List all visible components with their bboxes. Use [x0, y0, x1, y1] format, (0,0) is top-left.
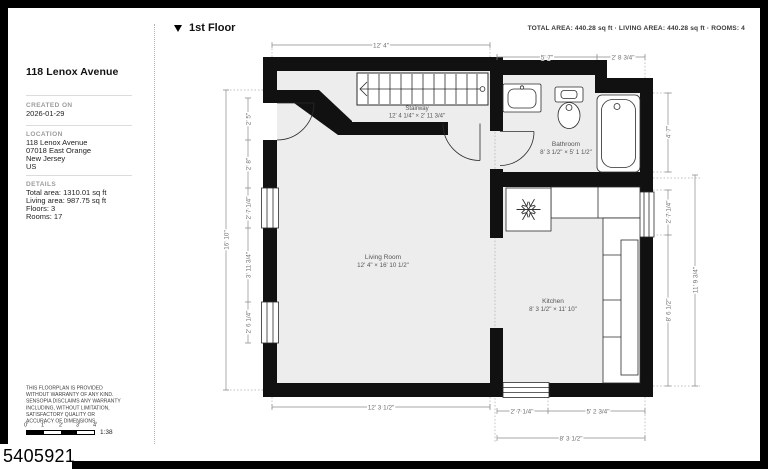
- sink: [503, 84, 541, 112]
- details-heading: DETAILS: [26, 181, 56, 188]
- svg-text:Living Room: Living Room: [365, 254, 401, 261]
- scale-segment: [61, 431, 78, 434]
- dimension-label: 11' 9 3/4": [693, 267, 700, 293]
- entry-door-opening: [263, 103, 277, 140]
- kitchen-appliance: [621, 240, 638, 375]
- dimension-label: 2' 5": [246, 113, 253, 125]
- details-lines: Total area: 1310.01 sq ft Living area: 9…: [26, 189, 106, 221]
- dimension-label: 5' 2 3/4": [586, 409, 609, 416]
- plan-id-number: 5405921: [0, 446, 75, 467]
- location-heading: LOCATION: [26, 131, 63, 138]
- scale-segment: [44, 431, 61, 434]
- floor-summary: TOTAL AREA: 440.28 sq ft · LIVING AREA: …: [528, 25, 745, 32]
- divider: [26, 95, 132, 96]
- divider: [26, 125, 132, 126]
- scale-tick-label: 4': [93, 422, 97, 428]
- window: [262, 188, 279, 228]
- svg-text:12' 4" × 16' 10 1/2": 12' 4" × 16' 10 1/2": [357, 262, 409, 269]
- scale-tick-label: 2': [58, 422, 62, 428]
- svg-text:Bathroom: Bathroom: [552, 141, 580, 148]
- svg-text:Kitchen: Kitchen: [542, 298, 564, 305]
- scale-ratio: 1:38: [100, 429, 113, 436]
- scale-tick-label: 0': [24, 422, 28, 428]
- dimension-label: 12' 4": [373, 43, 389, 50]
- divider: [26, 175, 132, 176]
- dimension-label: 5' 7": [541, 55, 553, 62]
- window: [639, 192, 654, 237]
- dimension-label: 16' 10": [224, 230, 231, 249]
- svg-text:8' 3 1/2" × 11' 10": 8' 3 1/2" × 11' 10": [529, 306, 577, 313]
- property-title: 118 Lenox Avenue: [26, 66, 118, 78]
- svg-text:8' 3 1/2" × 5' 1 1/2": 8' 3 1/2" × 5' 1 1/2": [540, 149, 592, 156]
- floor-label: 1st Floor: [189, 22, 235, 34]
- location-line: US: [26, 163, 91, 171]
- chevron-down-icon: [174, 25, 182, 32]
- dimension-label: 2' 6 1/4": [246, 310, 253, 333]
- dimension-label: 8' 6 1/2": [666, 298, 673, 321]
- svg-text:12' 4 1/4" × 2' 11 3/4": 12' 4 1/4" × 2' 11 3/4": [389, 114, 445, 120]
- kitchen-counter-top: [551, 187, 640, 218]
- dimension-label: 12' 3 1/2": [368, 405, 395, 412]
- bathtub: [597, 95, 640, 172]
- scale-segment: [27, 431, 44, 434]
- dimension-label: 3' 11 3/4": [246, 252, 253, 278]
- dimension-label: 2' 7 1/4": [510, 409, 533, 416]
- scale-tick-label: 1': [41, 422, 45, 428]
- dimension-label: 4' 7": [666, 126, 673, 138]
- created-on-heading: CREATED ON: [26, 102, 73, 109]
- scale-segment: [77, 431, 94, 434]
- dimension-label: 2' 8": [246, 158, 253, 170]
- dimension-label: 8' 3 1/2": [559, 436, 582, 443]
- floorplan-page: 118 Lenox Avenue CREATED ON 2026-01-29 L…: [0, 0, 768, 469]
- details-line: Rooms: 17: [26, 213, 106, 221]
- scale-bar: 0' 1' 2' 3' 4' 1:38: [26, 422, 146, 440]
- stair-direction-dot: [480, 87, 485, 92]
- created-on-value: 2026-01-29: [26, 110, 64, 118]
- disclaimer-text: THIS FLOORPLAN IS PROVIDED WITHOUT WARRA…: [26, 385, 124, 425]
- scale-tick-label: 3': [76, 422, 80, 428]
- scale-bar-segments: [26, 430, 95, 435]
- svg-text:Stairway: Stairway: [405, 105, 429, 112]
- dimension-label: 2' 7 1/4": [666, 200, 673, 223]
- dimension-label: 2' 8 3/4": [611, 55, 634, 62]
- location-lines: 118 Lenox Avenue 07018 East Orange New J…: [26, 139, 91, 171]
- dimension-label: 2' 7 1/4": [246, 196, 253, 219]
- window: [262, 302, 279, 343]
- window: [503, 383, 549, 398]
- plan-id: 5405921: [0, 444, 72, 469]
- floor-selector[interactable]: 1st Floor: [174, 22, 235, 34]
- stairway: [357, 73, 488, 105]
